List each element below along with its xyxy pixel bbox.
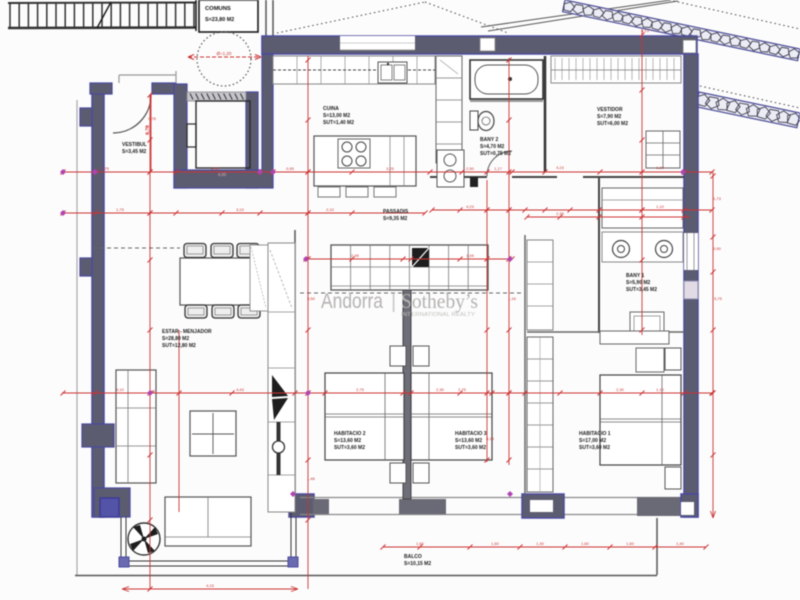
svg-text:1,17: 1,17 [494, 166, 503, 171]
svg-text:4,18: 4,18 [486, 436, 495, 441]
svg-text:4,23: 4,23 [466, 204, 475, 209]
svg-text:INTERNATIONAL REALTY: INTERNATIONAL REALTY [401, 312, 475, 318]
svg-text:S=23,80 M2: S=23,80 M2 [205, 17, 234, 23]
svg-text:4,43: 4,43 [236, 387, 245, 392]
svg-text:1,30: 1,30 [536, 541, 545, 546]
svg-text:S=7,90 M2: S=7,90 M2 [597, 114, 622, 120]
svg-text:COMUNS: COMUNS [205, 6, 231, 12]
svg-text:1,60: 1,60 [626, 541, 635, 546]
svg-text:S=13,00 M2: S=13,00 M2 [323, 113, 350, 119]
svg-text:2,35: 2,35 [556, 211, 565, 216]
svg-text:VESTIDOR: VESTIDOR [597, 107, 623, 113]
svg-text:S=13,60 M2: S=13,60 M2 [455, 438, 482, 444]
svg-text:S=4,70 M2: S=4,70 M2 [480, 144, 505, 150]
svg-text:HABITACIO 3: HABITACIO 3 [455, 431, 487, 437]
svg-text:BANY 1: BANY 1 [626, 273, 644, 279]
svg-text:1,10: 1,10 [656, 165, 665, 170]
svg-text:1,75: 1,75 [101, 166, 110, 171]
svg-text:1,10: 1,10 [656, 387, 665, 392]
svg-text:SUT=3,60 M2: SUT=3,60 M2 [579, 445, 610, 451]
svg-text:3,05: 3,05 [466, 253, 475, 258]
svg-text:HABITACIO 2: HABITACIO 2 [334, 431, 366, 437]
svg-text:2,10: 2,10 [326, 207, 335, 212]
svg-text:0,90: 0,90 [713, 246, 722, 251]
svg-text:BANY 2: BANY 2 [480, 137, 498, 143]
svg-text:S=5,90 M2: S=5,90 M2 [626, 280, 651, 286]
svg-text:1,60: 1,60 [581, 541, 590, 546]
svg-text:0,95: 0,95 [286, 166, 295, 171]
svg-text:SUT=12,80 M2: SUT=12,80 M2 [162, 343, 196, 349]
svg-text:5,75: 5,75 [714, 296, 723, 301]
svg-text:4,23: 4,23 [556, 165, 565, 170]
svg-text:0,78: 0,78 [148, 116, 157, 121]
svg-text:1,73: 1,73 [713, 196, 722, 201]
svg-text:HABITACIO 1: HABITACIO 1 [579, 431, 611, 437]
svg-text:S=3,45 M2: S=3,45 M2 [122, 149, 147, 155]
svg-text:Andorra: Andorra [321, 290, 383, 313]
svg-text:2,30: 2,30 [616, 387, 625, 392]
svg-text:Sotheby’s: Sotheby’s [401, 289, 478, 313]
svg-text:2,95: 2,95 [351, 253, 360, 258]
svg-text:BALCO: BALCO [404, 554, 422, 560]
svg-text:1,75: 1,75 [116, 207, 125, 212]
svg-text:2,30: 2,30 [436, 387, 445, 392]
svg-text:SUT=6,00 M2: SUT=6,00 M2 [597, 121, 628, 127]
svg-text:|: | [391, 291, 396, 313]
svg-text:SUT=1,40 M2: SUT=1,40 M2 [323, 120, 354, 126]
svg-text:PASSADIS: PASSADIS [383, 209, 409, 215]
svg-text:3,10: 3,10 [236, 207, 245, 212]
svg-text:S=9,35 M2: S=9,35 M2 [383, 216, 408, 222]
svg-text:SUT=3,45 M2: SUT=3,45 M2 [626, 287, 657, 293]
svg-text:4,15: 4,15 [206, 583, 215, 588]
svg-text:S=13,60 M2: S=13,60 M2 [334, 438, 361, 444]
svg-text:1,40: 1,40 [676, 541, 685, 546]
svg-text:SUT=3,60 M2: SUT=3,60 M2 [334, 445, 365, 451]
svg-text:1,16: 1,16 [508, 296, 517, 301]
svg-text:5,13: 5,13 [641, 28, 650, 33]
svg-text:4,00: 4,00 [218, 172, 227, 177]
svg-text:4,10: 4,10 [116, 387, 125, 392]
svg-text:ESTAR - MENJADOR: ESTAR - MENJADOR [162, 329, 212, 335]
svg-text:1,60: 1,60 [416, 541, 425, 546]
svg-text:4,00: 4,00 [211, 166, 220, 171]
svg-text:1,10: 1,10 [656, 204, 665, 209]
svg-text:SUT=3,60 M2: SUT=3,60 M2 [455, 445, 486, 451]
svg-text:3,25: 3,25 [386, 166, 395, 171]
svg-text:S=17,00 M2: S=17,00 M2 [579, 438, 606, 444]
svg-text:S=28,80 M2: S=28,80 M2 [162, 336, 189, 342]
svg-text:S=10,15 M2: S=10,15 M2 [404, 561, 431, 567]
svg-text:CUINA: CUINA [323, 106, 339, 112]
svg-text:2,75: 2,75 [458, 387, 467, 392]
svg-text:SUT=0,75 M2: SUT=0,75 M2 [480, 151, 511, 157]
svg-text:VESTIBUL: VESTIBUL [122, 142, 147, 148]
svg-text:5,50: 5,50 [307, 296, 316, 301]
svg-text:Ø=1,20: Ø=1,20 [217, 51, 232, 56]
svg-text:1,46: 1,46 [307, 476, 316, 481]
svg-text:2,50: 2,50 [466, 166, 475, 171]
svg-text:1,60: 1,60 [491, 541, 500, 546]
svg-text:2,75: 2,75 [356, 387, 365, 392]
